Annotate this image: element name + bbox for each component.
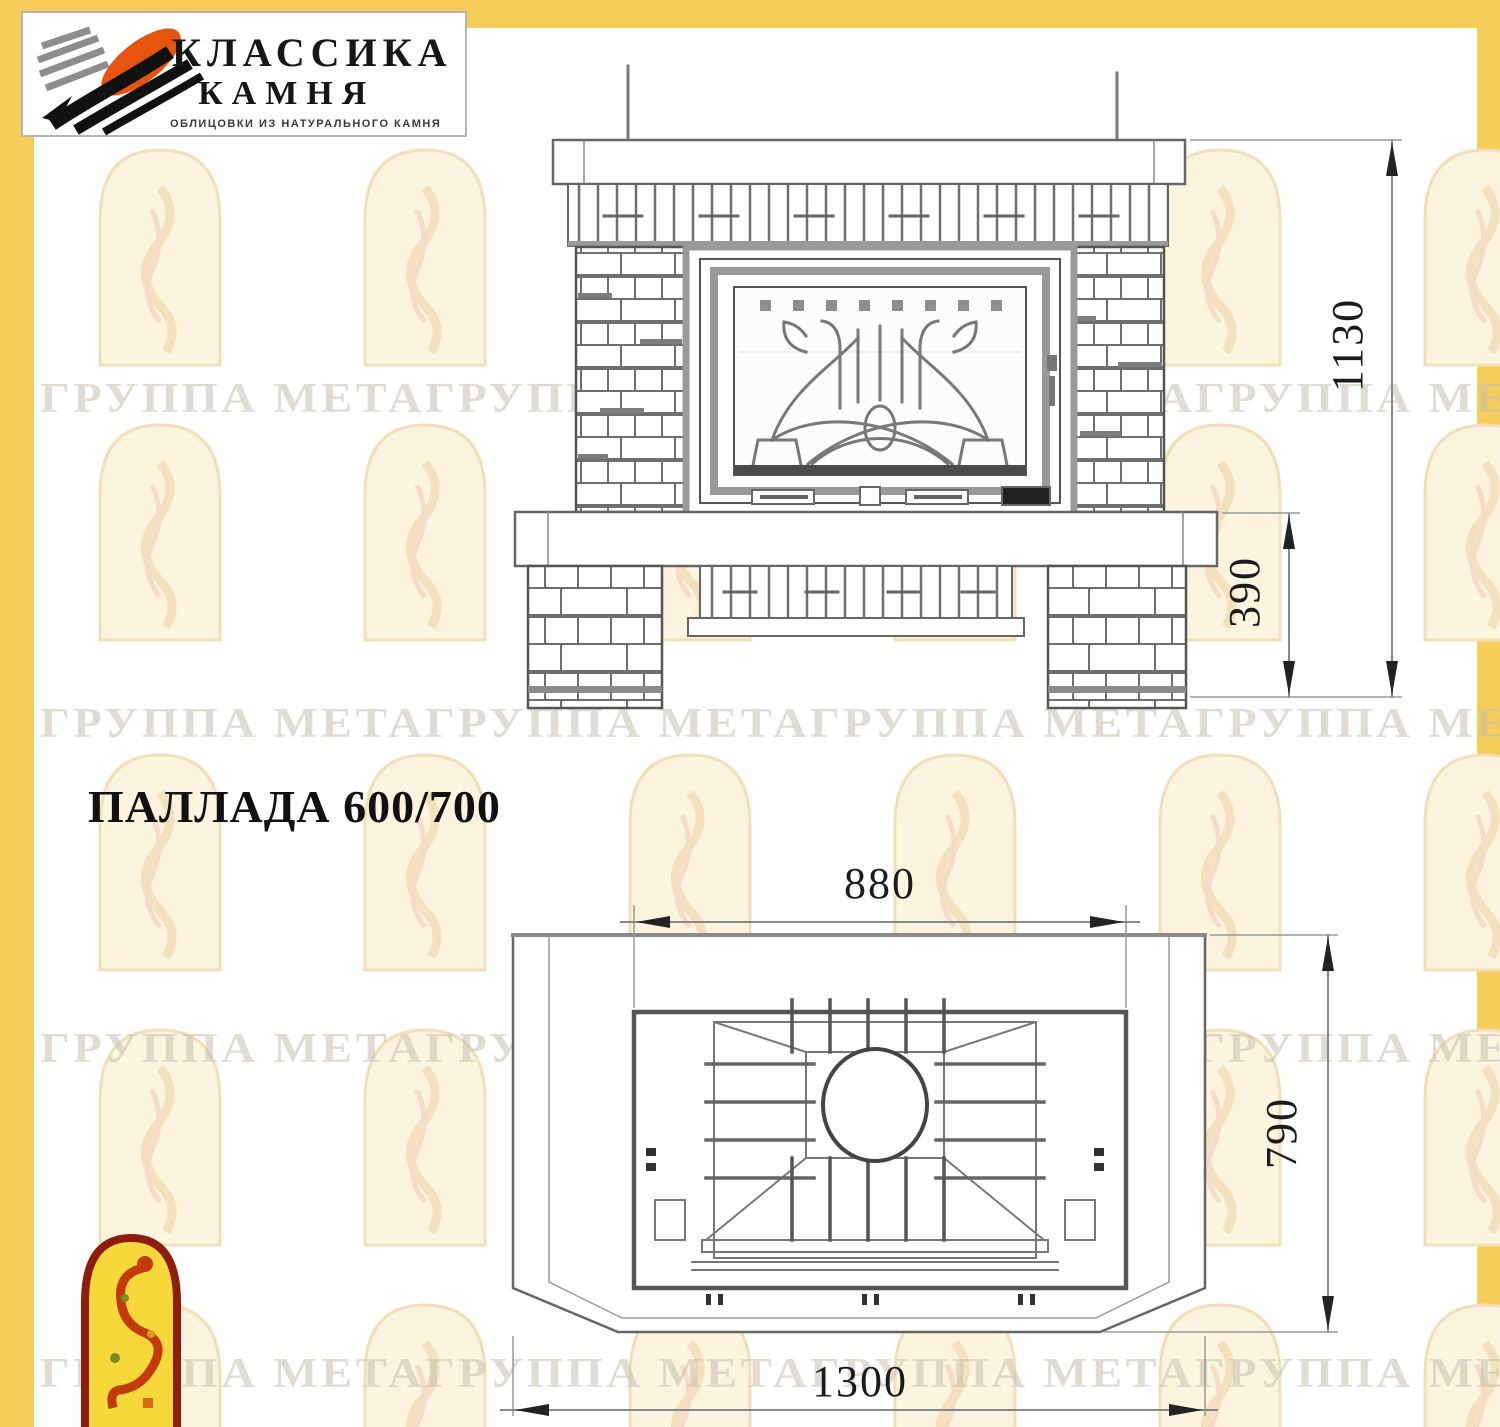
spec-sheet-page: ГРУППА МЕТАГРУППА МЕТАГРУППА МЕТАГРУППА … xyxy=(0,0,1500,1427)
logo-name-line2: КАМНЯ xyxy=(198,75,375,112)
plinth-strip xyxy=(688,618,1024,636)
ash-vent-dark xyxy=(1002,487,1050,505)
left-border-band xyxy=(0,0,34,1427)
mascot-icon xyxy=(85,1238,177,1427)
firebox-door xyxy=(686,247,1074,515)
mascot-speck xyxy=(143,1398,153,1408)
upper-soldier-band xyxy=(568,184,1168,246)
company-logo: КЛАССИКА КАМНЯ ОБЛИЦОВКИ ИЗ НАТУРАЛЬНОГО… xyxy=(22,12,466,136)
mascot-speck xyxy=(121,1294,129,1302)
mascot-arch xyxy=(85,1238,177,1427)
fireplace-drawing-canvas: ГРУППА МЕТАГРУППА МЕТАГРУППА МЕТАГРУППА … xyxy=(0,0,1500,1427)
hearth-shelf xyxy=(515,512,1217,566)
door-handle-bar xyxy=(1049,376,1055,406)
mascot-speck xyxy=(147,1330,155,1338)
dim-label-height: 1130 xyxy=(1323,298,1372,392)
logo-subtitle: ОБЛИЦОВКИ ИЗ НАТУРАЛЬНОГО КАМНЯ xyxy=(170,118,441,130)
dim-label-base-height: 390 xyxy=(1220,556,1269,628)
dim-label-insert-width: 880 xyxy=(844,859,916,908)
door-handle xyxy=(1047,355,1057,371)
dim-label-depth: 790 xyxy=(1257,1097,1306,1169)
top-mantel-shelf xyxy=(553,140,1185,184)
logo-name-line1: КЛАССИКА xyxy=(172,30,452,75)
product-title: ПАЛЛАДА 600/700 xyxy=(88,781,501,832)
plan-view xyxy=(513,935,1205,1332)
left-pedestal-dark-course xyxy=(528,686,662,693)
watermark-text: ГРУППА МЕТАГРУППА МЕТАГРУППА МЕТАГРУППА … xyxy=(40,1351,1500,1397)
right-pedestal-dark-course xyxy=(1048,686,1186,693)
watermark-text: ГРУППА МЕТАГРУППА МЕТАГРУППА МЕТАГРУППА … xyxy=(40,701,1500,747)
door-sill xyxy=(734,465,1026,475)
dim-label-width: 1300 xyxy=(812,1357,908,1406)
front-elevation-view xyxy=(515,66,1217,708)
mascot-speck xyxy=(110,1353,120,1363)
flue-opening xyxy=(823,1049,927,1161)
